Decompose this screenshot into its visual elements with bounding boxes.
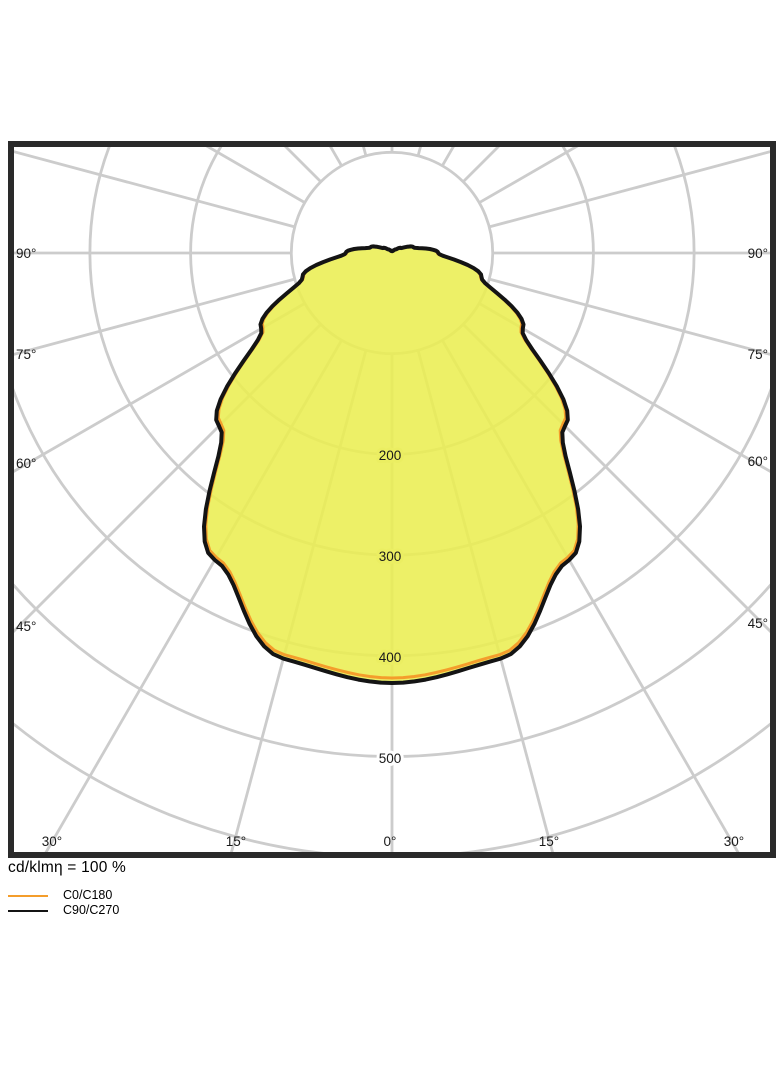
legend-row-c0: C0/C180 [8, 888, 119, 903]
legend-row-c90: C90/C270 [8, 903, 119, 918]
photometric-diagram-page: 90°75°60°45°90°75°60°45°30°15°0°15°30°20… [0, 0, 784, 1066]
angle-label-left-60°: 60° [16, 456, 36, 471]
angle-label-right-60°: 60° [748, 454, 768, 469]
angle-label-right-75°: 75° [748, 347, 768, 362]
grid-spoke-195 [201, 0, 366, 156]
c90-line-swatch [8, 910, 48, 912]
angle-label-bottom-1-15°: 15° [226, 834, 246, 849]
angle-label-right-45°: 45° [748, 616, 768, 631]
angle-label-left-90°: 90° [16, 246, 36, 261]
angle-label-left-75°: 75° [16, 347, 36, 362]
curve-legend: C0/C180 C90/C270 [8, 888, 119, 918]
radial-label-200: 200 [379, 448, 402, 463]
radial-label-500: 500 [379, 751, 402, 766]
angle-label-bottom-4-30°: 30° [724, 834, 744, 849]
legend-label-c90: C90/C270 [63, 903, 119, 918]
angle-label-bottom-0-30°: 30° [42, 834, 62, 849]
c0-line-swatch [8, 895, 48, 897]
angle-label-left-45°: 45° [16, 619, 36, 634]
angle-label-bottom-2-0°: 0° [384, 834, 397, 849]
radial-label-300: 300 [379, 549, 402, 564]
legend-label-c0: C0/C180 [63, 888, 112, 903]
angle-label-right-90°: 90° [748, 246, 768, 261]
grid-spoke-165 [418, 0, 583, 156]
radial-label-400: 400 [379, 650, 402, 665]
angle-label-bottom-3-15°: 15° [539, 834, 559, 849]
unit-caption: cd/klmη = 100 % [8, 859, 126, 877]
grid-spoke-150 [442, 0, 762, 166]
grid-spoke-210 [22, 0, 342, 166]
